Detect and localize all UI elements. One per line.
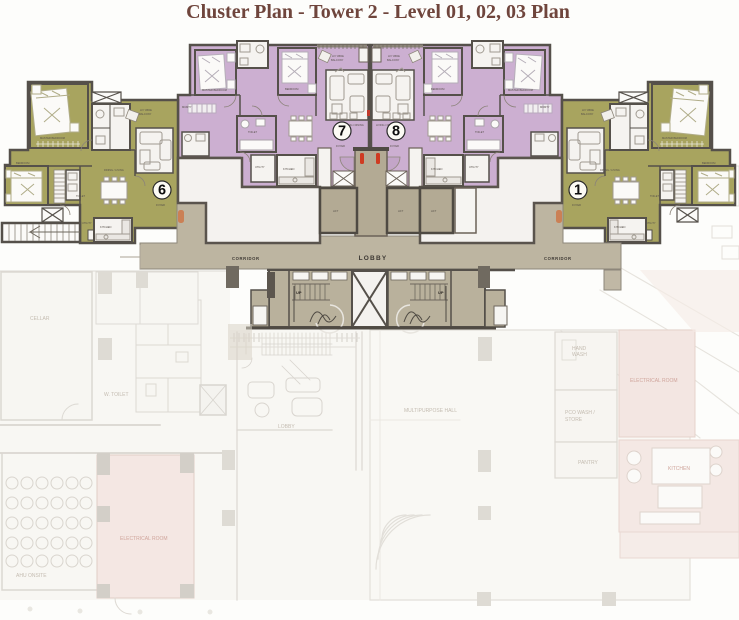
svg-text:TOILET: TOILET — [475, 130, 484, 134]
svg-text:UP: UP — [296, 290, 302, 295]
svg-text:UTILITY: UTILITY — [469, 165, 479, 169]
svg-text:UP: UP — [438, 290, 444, 295]
svg-text:LIFT: LIFT — [431, 209, 437, 213]
svg-text:BALCONY: BALCONY — [387, 58, 400, 62]
svg-text:MASTER BEDROOM: MASTER BEDROOM — [202, 88, 227, 92]
svg-text:BALCONY: BALCONY — [139, 112, 152, 116]
svg-text:FOYER: FOYER — [572, 203, 581, 207]
svg-text:MUMTY: MUMTY — [540, 105, 550, 109]
svg-text:Cluster Plan - Tower 2 - Level: Cluster Plan - Tower 2 - Level 01, 02, 0… — [186, 1, 570, 23]
svg-text:LIV' WIDE: LIV' WIDE — [582, 108, 594, 112]
svg-text:CELLAR: CELLAR — [30, 316, 50, 322]
svg-text:KITCHEN: KITCHEN — [614, 225, 626, 229]
svg-text:STORE: STORE — [565, 417, 583, 423]
svg-text:BALCONY: BALCONY — [331, 58, 344, 62]
svg-text:MASTER BEDROOM: MASTER BEDROOM — [508, 88, 533, 92]
svg-text:LOBBY: LOBBY — [278, 424, 295, 430]
svg-text:KITCHEN: KITCHEN — [431, 167, 443, 171]
svg-text:CORRIDOR: CORRIDOR — [544, 256, 572, 261]
svg-text:FOYER: FOYER — [390, 144, 399, 148]
svg-text:KITCHEN: KITCHEN — [668, 466, 690, 472]
svg-text:6: 6 — [158, 183, 166, 199]
svg-text:DINING / LIVING: DINING / LIVING — [104, 168, 124, 172]
svg-text:LOBBY: LOBBY — [359, 255, 388, 262]
svg-text:CORRIDOR: CORRIDOR — [232, 256, 260, 261]
svg-text:1: 1 — [574, 183, 582, 199]
svg-text:W. TOILET: W. TOILET — [104, 392, 129, 398]
svg-text:ELECTRICAL ROOM: ELECTRICAL ROOM — [630, 378, 678, 384]
svg-text:PANTRY: PANTRY — [578, 460, 598, 466]
svg-text:LIFT: LIFT — [333, 209, 339, 213]
svg-text:LIFT: LIFT — [398, 209, 404, 213]
svg-text:BEDROOM: BEDROOM — [431, 87, 444, 91]
svg-text:MUMTY: MUMTY — [182, 105, 192, 109]
svg-text:AHU ONSITE: AHU ONSITE — [16, 573, 47, 579]
svg-text:FOYER: FOYER — [156, 203, 165, 207]
svg-text:KITCHEN: KITCHEN — [100, 225, 112, 229]
svg-text:BALCONY: BALCONY — [581, 112, 594, 116]
svg-text:BEDROOM: BEDROOM — [285, 87, 298, 91]
svg-text:TOILET: TOILET — [650, 194, 659, 198]
svg-text:DINING / LIVING: DINING / LIVING — [600, 168, 620, 172]
svg-text:MULTIPURPOSE HALL: MULTIPURPOSE HALL — [404, 408, 457, 414]
svg-text:LIV' WIDE: LIV' WIDE — [140, 108, 152, 112]
svg-text:MASTER BEDROOM: MASTER BEDROOM — [40, 136, 65, 140]
svg-text:UTILITY: UTILITY — [255, 165, 265, 169]
svg-text:FOYER: FOYER — [336, 144, 345, 148]
svg-text:BEDROOM: BEDROOM — [16, 161, 29, 165]
svg-text:7: 7 — [338, 124, 346, 140]
svg-text:UTILITY: UTILITY — [82, 221, 92, 225]
svg-text:8: 8 — [392, 124, 400, 140]
svg-text:ELECTRICAL ROOM: ELECTRICAL ROOM — [120, 536, 168, 542]
svg-text:WASH: WASH — [572, 352, 587, 358]
svg-text:MASTER BEDROOM: MASTER BEDROOM — [662, 136, 687, 140]
svg-text:LIV' WIDE: LIV' WIDE — [388, 54, 400, 58]
svg-text:KITCHEN: KITCHEN — [283, 167, 295, 171]
svg-text:PCO WASH /: PCO WASH / — [565, 410, 595, 416]
svg-text:BEDROOM: BEDROOM — [702, 161, 715, 165]
svg-text:TOILET: TOILET — [248, 130, 257, 134]
svg-text:UTILITY: UTILITY — [646, 221, 656, 225]
svg-text:LIV' WIDE: LIV' WIDE — [332, 54, 344, 58]
